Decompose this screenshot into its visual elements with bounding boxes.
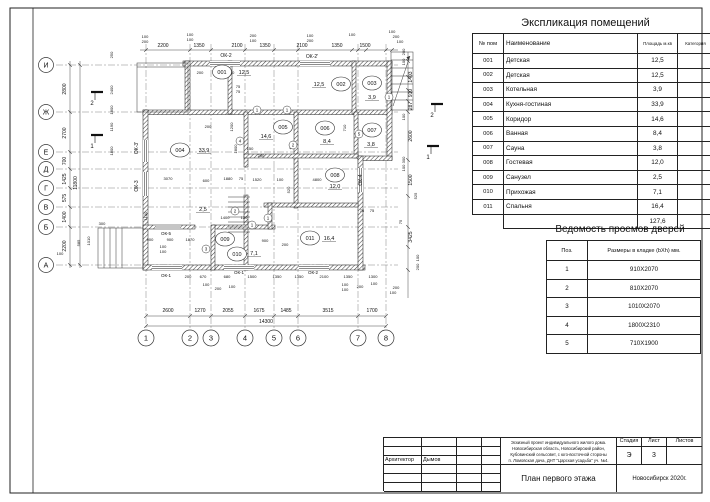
dimension-text: 1400 — [62, 211, 68, 222]
dimension-text: 100 — [397, 39, 404, 44]
dimension-text: 680 — [224, 274, 231, 279]
axis-row-label: Е — [44, 150, 49, 157]
dimension-text: 200 — [258, 153, 265, 158]
title-block-right: Стадия Лист Листов Э 3 Новосибирск 2020г… — [617, 438, 702, 492]
title-block-cell — [422, 483, 457, 492]
room-category — [678, 185, 710, 200]
col-header-area: Площадь м.кв — [638, 34, 678, 54]
doors-block: Ведомость проемов дверей Поз. Размеры в … — [546, 224, 694, 354]
dimension-text: 2100 — [231, 43, 242, 49]
dimension-text: 100 — [401, 164, 406, 171]
dimension-text: 1350 — [193, 43, 204, 49]
explication-block: Экспликация помещений № пом Наименование… — [472, 17, 699, 229]
room-number: 001 — [473, 54, 504, 69]
title-block-cell — [384, 474, 422, 483]
dimension-text: 1350 — [331, 43, 342, 49]
explication-row: 010 Прихожая 7,1 — [473, 185, 710, 200]
project-line: п. Ломовская дача, ДНТ "Царская усадьба"… — [501, 458, 616, 464]
door-size: 1010X2070 — [588, 298, 701, 317]
title-block-cell — [422, 465, 457, 474]
room-area-value: 2,5 — [199, 207, 207, 213]
room-number: 011 — [473, 199, 504, 214]
explication-row: 002 Детская 12,5 — [473, 68, 710, 83]
dimension-text: 1400 — [221, 215, 231, 220]
dimension-text: 200 — [185, 274, 192, 279]
room-area-value: 3,9 — [368, 95, 376, 101]
room-area: 8,4 — [638, 126, 678, 141]
dimension-text: 1485 — [280, 308, 291, 314]
axis-col-label: 6 — [296, 334, 300, 343]
window-label: ОК-2 — [220, 53, 231, 59]
dimension-text: 1010 — [86, 236, 91, 246]
axis-row-label: Ж — [43, 110, 50, 117]
room-category — [678, 97, 710, 112]
architect-name: Дымов — [422, 456, 457, 465]
room-bubble-number: 005 — [278, 125, 287, 131]
room-area-value: 12,5 — [314, 82, 325, 88]
room-name: Санузел — [504, 170, 638, 185]
doors-table: Поз. Размеры в кладке (bXh) мм. 1 910X20… — [546, 240, 701, 354]
section-mark-number: 1 — [90, 144, 94, 150]
room-area-value: 33,9 — [199, 148, 210, 154]
architect-label: Архитектор — [384, 456, 422, 465]
door-row: 2 810X2070 — [547, 279, 701, 298]
dimension-text: 520 — [286, 186, 291, 193]
title-block-cell — [384, 483, 422, 492]
title-block-cell — [457, 438, 482, 447]
dimension-text: 2700 — [62, 127, 68, 138]
window-label: ОК-2 — [308, 270, 319, 275]
dimension-text: 2600 — [408, 130, 414, 141]
axis-col-label: 4 — [243, 334, 247, 343]
dimension-text: 1520 — [253, 177, 263, 182]
dimension-text: 910 — [408, 89, 414, 98]
room-area: 12,5 — [638, 54, 678, 69]
dimension-text: 4800 — [313, 177, 323, 182]
door-size: 1800X2310 — [588, 316, 701, 335]
dimension-text: 200 — [282, 242, 289, 247]
dimension-text: 14300 — [259, 319, 273, 325]
title-block-cell — [384, 447, 422, 456]
dimension-text: 2100 — [320, 274, 330, 279]
title-block-cell — [482, 456, 501, 465]
room-bubble-number: 001 — [217, 70, 226, 76]
dimension-text: 200 — [205, 124, 212, 129]
room-area-value: 12,5 — [239, 70, 250, 76]
dimension-text: 200 — [142, 39, 149, 44]
dimension-text: 3070 — [164, 176, 174, 181]
axis-col-label: 3 — [209, 334, 213, 343]
explication-row: 009 Санузел 2,5 — [473, 170, 710, 185]
room-area-value: 16,4 — [324, 236, 335, 242]
dimension-text: 900 — [167, 237, 174, 242]
room-number: 008 — [473, 156, 504, 171]
door-size: 810X2070 — [588, 279, 701, 298]
explication-row: 007 Сауна 3,8 — [473, 141, 710, 156]
dimension-text: 1675 — [253, 308, 264, 314]
stage-label: Стадия — [617, 438, 642, 447]
sheets-value — [667, 447, 702, 465]
dimension-text: 585 — [76, 239, 81, 246]
room-area: 14,6 — [638, 112, 678, 127]
title-block-cell — [457, 456, 482, 465]
dimension-text: 100 — [277, 177, 284, 182]
room-category — [678, 54, 710, 69]
dimension-text: 100 — [401, 58, 406, 65]
room-name: Ванная — [504, 126, 638, 141]
door-size: 910X2070 — [588, 261, 701, 280]
room-number: 006 — [473, 126, 504, 141]
dimension-text: 75 — [370, 208, 375, 213]
dimension-text: 1300 — [369, 274, 379, 279]
dimension-text: 670 — [200, 274, 207, 279]
dimension-text: 2200 — [62, 240, 68, 251]
dimension-text: 287 — [408, 102, 414, 111]
sheet-value: 3 — [642, 447, 667, 465]
dimension-text: 1500 — [408, 174, 414, 185]
explication-row: 008 Гостевая 12,0 — [473, 156, 710, 171]
room-number: 003 — [473, 83, 504, 98]
dimension-text: 575 — [62, 194, 68, 203]
window-label: ОК-3 — [134, 180, 140, 191]
room-area: 3,8 — [638, 141, 678, 156]
dimension-text: 1880 — [224, 176, 234, 181]
dimension-text: 1425 — [62, 173, 68, 184]
dimension-text: 100 — [349, 32, 356, 37]
dimension-text: 1800 — [109, 146, 114, 156]
sheet-label: Лист — [642, 438, 667, 447]
dimension-text: 700 — [62, 157, 68, 166]
dimension-text: 1350 — [273, 274, 283, 279]
door-position: 2 — [547, 279, 588, 298]
dimension-text: 200 — [215, 286, 222, 291]
dimension-text: 1800 — [109, 105, 114, 115]
dimension-text: 200 — [415, 263, 420, 270]
room-area: 12,0 — [638, 156, 678, 171]
room-number: 004 — [473, 97, 504, 112]
drawing-title: План первого этажа — [501, 465, 616, 492]
doors-title: Ведомость проемов дверей — [546, 224, 694, 235]
stage-value: Э — [617, 447, 642, 465]
title-block-cell — [384, 438, 422, 447]
room-name: Гостевая — [504, 156, 638, 171]
door-position: 4 — [547, 316, 588, 335]
window-label: ОК-1 — [161, 273, 172, 278]
room-bubble-number: 002 — [336, 82, 345, 88]
dimension-text: 1500 — [359, 43, 370, 49]
dimension-text: 100 — [415, 254, 420, 261]
dimension-text: 2055 — [222, 308, 233, 314]
room-number: 009 — [473, 170, 504, 185]
door-row: 3 1010X2070 — [547, 298, 701, 317]
dimension-text: 150 — [247, 146, 254, 151]
dimension-text: 2600 — [162, 308, 173, 314]
room-number: 002 — [473, 68, 504, 83]
room-category — [678, 156, 710, 171]
dimension-text: 1350 — [295, 274, 305, 279]
dimension-text: 1350 — [344, 274, 354, 279]
room-name: Сауна — [504, 141, 638, 156]
dimension-text: 1800 — [233, 144, 238, 154]
room-number: 010 — [473, 185, 504, 200]
col-header-position: Поз. — [547, 241, 588, 261]
room-area-value: 3,8 — [367, 142, 375, 148]
room-bubble-number: 008 — [330, 173, 339, 179]
dimension-text: 1350 — [259, 43, 270, 49]
room-area-value: 12,0 — [330, 184, 341, 190]
title-block-cell — [422, 447, 457, 456]
dimension-text: 1200 — [229, 122, 234, 132]
room-name: Кухня-гостиная — [504, 97, 638, 112]
room-category — [678, 141, 710, 156]
title-block-cell — [482, 483, 501, 492]
room-area: 16,4 — [638, 199, 678, 214]
explication-row: 003 Котельная 3,9 — [473, 83, 710, 98]
door-row: 5 710X1900 — [547, 335, 701, 354]
dimension-text: 100 — [203, 282, 210, 287]
dimension-text: 300 — [401, 156, 406, 163]
room-category — [678, 68, 710, 83]
title-block-cell — [422, 438, 457, 447]
axis-col-label: 7 — [356, 334, 360, 343]
title-block-cell — [457, 447, 482, 456]
dimension-text: 600 — [203, 178, 210, 183]
room-name: Котельная — [504, 83, 638, 98]
door-position: 5 — [547, 335, 588, 354]
section-mark-number: 2 — [90, 101, 94, 107]
dimension-text: 200 — [357, 284, 364, 289]
title-block-cell — [482, 447, 501, 456]
dimension-text: 2100 — [296, 43, 307, 49]
room-bubble-number: 007 — [367, 128, 376, 134]
dimension-text: 2400 — [109, 85, 114, 95]
axis-row-label: Г — [44, 186, 48, 193]
axis-row-label: И — [43, 63, 48, 70]
room-bubble-number: 004 — [175, 148, 184, 154]
room-category — [678, 199, 710, 214]
window-label: ОК-4 — [358, 174, 364, 185]
col-header-size: Размеры в кладке (bXh) мм. — [588, 241, 701, 261]
dimension-text: 100 — [342, 287, 349, 292]
room-area-value: 7,1 — [250, 251, 258, 257]
dimension-text: 1100 — [143, 211, 148, 220]
dimension-text: 75 — [360, 208, 365, 213]
dimension-text: 1190 — [109, 122, 114, 131]
room-area: 12,5 — [638, 68, 678, 83]
room-category — [678, 126, 710, 141]
drawing-sheet: ИЖЕДГВБА12345678 — [0, 0, 710, 502]
title-block-cell — [457, 465, 482, 474]
room-area-value: 8,4 — [323, 139, 331, 145]
dimension-text: 100 — [390, 290, 397, 295]
axis-col-label: 1 — [144, 334, 148, 343]
door-position: 1 — [547, 261, 588, 280]
door-row: 4 1800X2310 — [547, 316, 701, 335]
explication-title: Экспликация помещений — [472, 17, 699, 29]
door-row: 1 910X2070 — [547, 261, 701, 280]
window-label: ОК-5 — [161, 231, 172, 236]
room-category — [678, 170, 710, 185]
dimension-text: 100 — [401, 113, 406, 120]
room-name: Коридор — [504, 112, 638, 127]
col-header-room-number: № пом — [473, 34, 504, 54]
title-block-cell — [482, 474, 501, 483]
dimension-text: 1500 — [248, 274, 258, 279]
dimension-text: 525 — [413, 192, 418, 199]
dimension-text: 120 — [241, 215, 248, 220]
terrace-outline — [137, 63, 188, 112]
project-description: Эскизный проект индивидуального жилого д… — [501, 438, 616, 465]
explication-row: 001 Детская 12,5 — [473, 54, 710, 69]
title-block-cell — [482, 438, 501, 447]
axis-row-label: В — [44, 205, 49, 212]
dimension-text: 200 — [307, 38, 314, 43]
room-bubble-number: 003 — [367, 81, 376, 87]
dimension-text: 75 — [239, 176, 244, 181]
window-label: ОК-2' — [306, 54, 318, 60]
window-label: ОК-1 — [234, 270, 245, 275]
axis-row-label: Д — [44, 167, 49, 174]
room-category — [678, 83, 710, 98]
dimension-text: 250 — [109, 51, 114, 58]
dimension-text: 300 — [99, 221, 106, 226]
city-year: Новосибирск 2020г. — [617, 465, 702, 492]
dimension-text: 100 — [160, 249, 167, 254]
project-line: Кубовинский сельсовет, с юго-восточной с… — [501, 452, 616, 458]
room-area: 3,9 — [638, 83, 678, 98]
room-area: 2,5 — [638, 170, 678, 185]
room-name: Спальня — [504, 199, 638, 214]
dimension-text: 1870 — [186, 237, 196, 242]
axis-col-label: 5 — [272, 334, 276, 343]
dimension-text: 11800 — [73, 176, 79, 190]
section-mark-number: 1 — [426, 155, 430, 161]
dimension-text: 100 — [57, 251, 64, 256]
room-area: 7,1 — [638, 185, 678, 200]
title-block: АрхитекторДымов Эскизный проект индивиду… — [383, 437, 701, 491]
dimension-text: 75 — [398, 219, 403, 224]
title-block-cell — [384, 465, 422, 474]
room-category — [678, 112, 710, 127]
room-bubble-number: 010 — [232, 252, 241, 258]
dimension-text: 710 — [342, 124, 347, 131]
room-area-value: 14,6 — [261, 134, 272, 140]
explication-row: 004 Кухня-гостиная 33,9 — [473, 97, 710, 112]
title-block-cell — [457, 474, 482, 483]
room-bubble-number: 006 — [320, 126, 329, 132]
dimension-text: 200 — [197, 70, 204, 75]
axis-row-label: А — [44, 263, 49, 270]
room-bubble-number: 011 — [306, 236, 315, 242]
dimension-text: 900 — [147, 237, 154, 242]
dimension-text: 1270 — [194, 308, 205, 314]
col-header-name: Наименование — [504, 34, 638, 54]
col-header-category: Категория — [678, 34, 710, 54]
title-block-cell — [482, 465, 501, 474]
door-size: 710X1900 — [588, 335, 701, 354]
title-block-cell — [457, 483, 482, 492]
window-label: ОК-3' — [134, 142, 140, 154]
door-position: 3 — [547, 298, 588, 317]
title-block-cell — [422, 474, 457, 483]
title-block-signatures: АрхитекторДымов — [384, 438, 501, 492]
room-area: 33,9 — [638, 97, 678, 112]
dimension-text: 2800 — [62, 83, 68, 94]
room-number: 007 — [473, 141, 504, 156]
room-number: 005 — [473, 112, 504, 127]
explication-row: 005 Коридор 14,6 — [473, 112, 710, 127]
dimension-text: 900 — [262, 238, 269, 243]
axis-col-label: 2 — [188, 334, 192, 343]
dimension-text: 2200 — [157, 43, 168, 49]
dimension-text: 75 — [236, 89, 241, 94]
room-name: Детская — [504, 68, 638, 83]
dimension-text: 100 — [229, 284, 236, 289]
title-block-middle: Эскизный проект индивидуального жилого д… — [501, 438, 617, 492]
section-mark-number: 2 — [430, 113, 434, 119]
plan-annotations: 2200135021001350210013501500100200100100… — [57, 29, 443, 325]
dimension-text: 3515 — [322, 308, 333, 314]
room-name: Детская — [504, 54, 638, 69]
axis-col-label: 8 — [384, 334, 388, 343]
dimension-text: 1700 — [366, 308, 377, 314]
dimension-text: 1403 — [408, 71, 414, 82]
dimension-text: 100 — [371, 281, 378, 286]
dimension-text: 200 — [401, 48, 406, 55]
explication-table: № пом Наименование Площадь м.кв Категори… — [472, 33, 710, 229]
room-name: Прихожая — [504, 185, 638, 200]
explication-row: 011 Спальня 16,4 — [473, 199, 710, 214]
dimension-text: 3425 — [408, 231, 414, 242]
porch-outline — [98, 228, 143, 268]
explication-row: 006 Ванная 8,4 — [473, 126, 710, 141]
dimension-text: 100 — [187, 37, 194, 42]
sheets-label: Листов — [667, 438, 702, 447]
axis-row-label: Б — [44, 225, 49, 232]
dimension-text: 100 — [250, 38, 257, 43]
room-bubble-number: 009 — [220, 237, 229, 243]
